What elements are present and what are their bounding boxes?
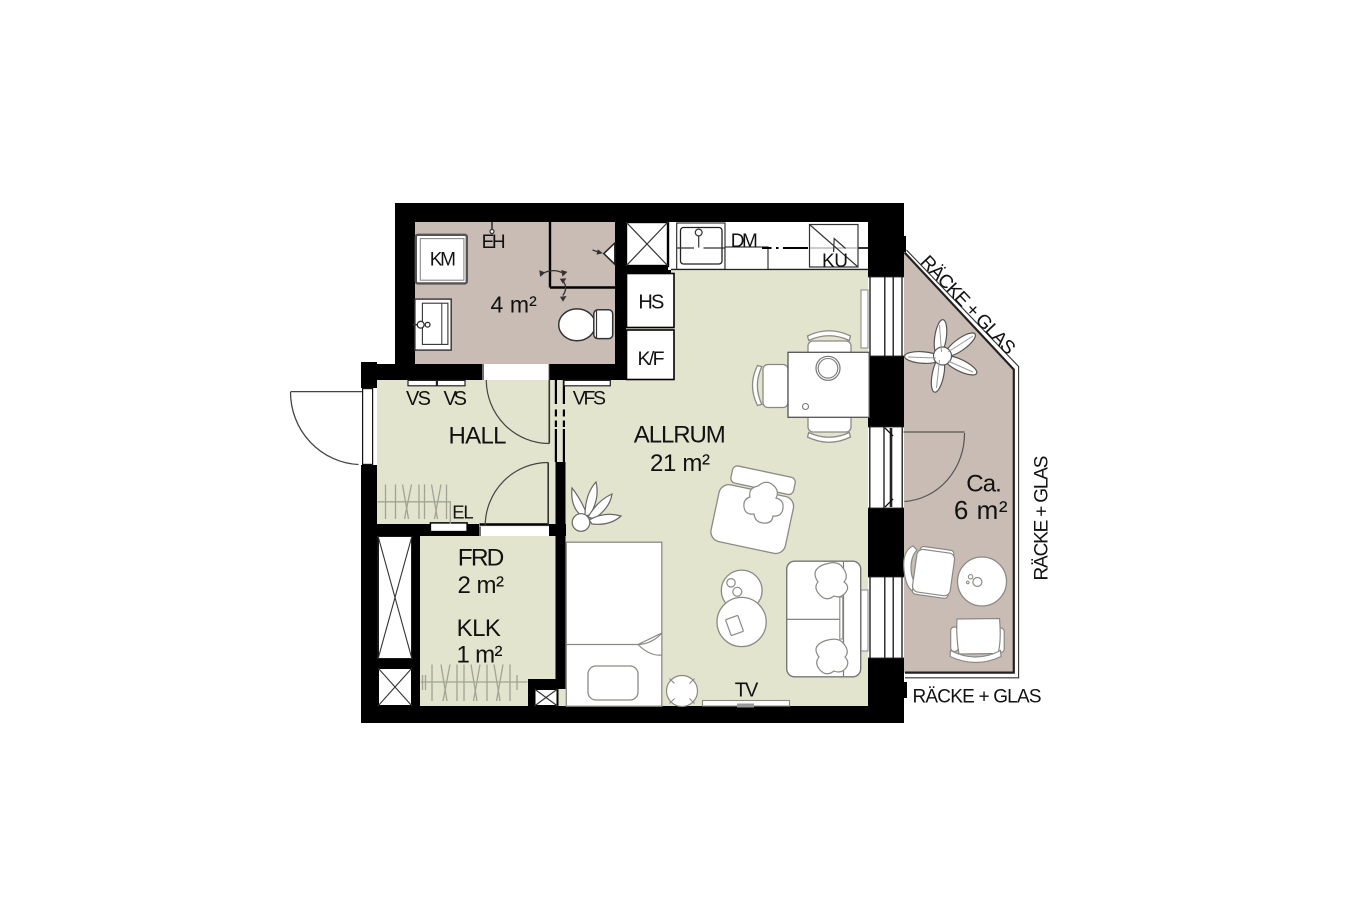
svg-text:TV: TV: [735, 679, 759, 701]
svg-text:KLK: KLK: [457, 615, 501, 642]
svg-text:RÄCKE + GLAS: RÄCKE + GLAS: [1031, 456, 1052, 581]
svg-text:HALL: HALL: [449, 423, 507, 450]
svg-text:HS: HS: [638, 292, 664, 314]
svg-text:DM: DM: [731, 231, 758, 252]
svg-text:2 m²: 2 m²: [458, 572, 505, 599]
svg-text:VS: VS: [444, 388, 468, 410]
svg-text:1 m²: 1 m²: [457, 642, 503, 669]
svg-text:21 m²: 21 m²: [650, 450, 710, 477]
svg-text:ALLRUM: ALLRUM: [634, 421, 726, 448]
svg-text:Ca.: Ca.: [966, 470, 1002, 497]
svg-text:K/F: K/F: [638, 348, 665, 370]
svg-text:KM: KM: [430, 250, 456, 271]
svg-text:FRD: FRD: [458, 544, 505, 571]
svg-text:4 m²: 4 m²: [491, 291, 538, 317]
svg-text:VFS: VFS: [573, 388, 606, 410]
svg-text:6 m²: 6 m²: [954, 495, 1008, 525]
svg-text:EL: EL: [452, 502, 474, 523]
svg-text:KU: KU: [822, 251, 848, 272]
svg-text:VS: VS: [406, 388, 431, 410]
svg-text:RÄCKE + GLAS: RÄCKE + GLAS: [913, 686, 1042, 707]
svg-text:EH: EH: [482, 232, 506, 253]
